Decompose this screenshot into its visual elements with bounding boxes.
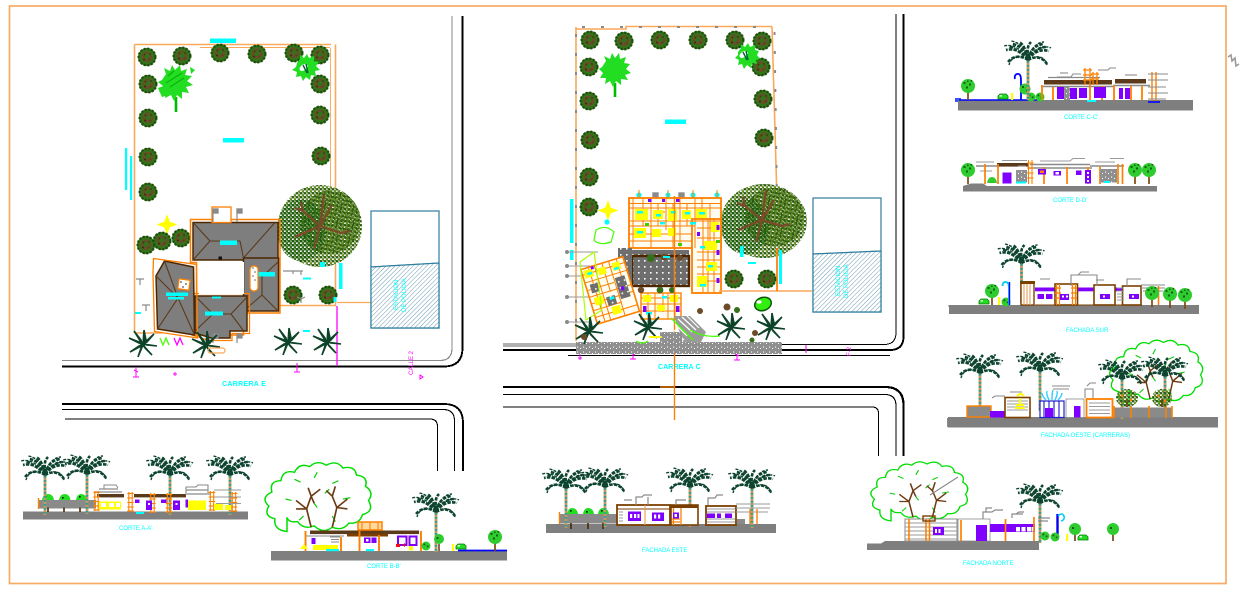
svg-text:FACHADA NORTE: FACHADA NORTE	[963, 561, 1014, 567]
svg-text:CARRERA E: CARRERA E	[222, 381, 266, 388]
svg-text:ESTACION: ESTACION	[836, 266, 842, 296]
svg-text:CORTE A-A': CORTE A-A'	[119, 526, 152, 532]
svg-text:ESTACION: ESTACION	[394, 280, 400, 310]
svg-text:F-2: F-2	[847, 346, 853, 356]
svg-text:CORTE D-D': CORTE D-D'	[1053, 198, 1087, 204]
svg-text:FACHADA ESTE: FACHADA ESTE	[642, 548, 687, 554]
svg-text:FACHADA SUR: FACHADA SUR	[1066, 328, 1109, 334]
svg-text:CORTE C-C': CORTE C-C'	[1064, 115, 1098, 121]
svg-text:DE POLICIA: DE POLICIA	[844, 264, 850, 298]
svg-text:FACHADA OESTE (CARRERAS): FACHADA OESTE (CARRERAS)	[1041, 433, 1130, 439]
svg-text:CALLE 2: CALLE 2	[409, 350, 415, 375]
svg-text:DE POLICIA: DE POLICIA	[402, 278, 408, 312]
svg-text:CORTE B-B': CORTE B-B'	[367, 564, 401, 570]
svg-text:CARRERA C: CARRERA C	[658, 364, 701, 371]
